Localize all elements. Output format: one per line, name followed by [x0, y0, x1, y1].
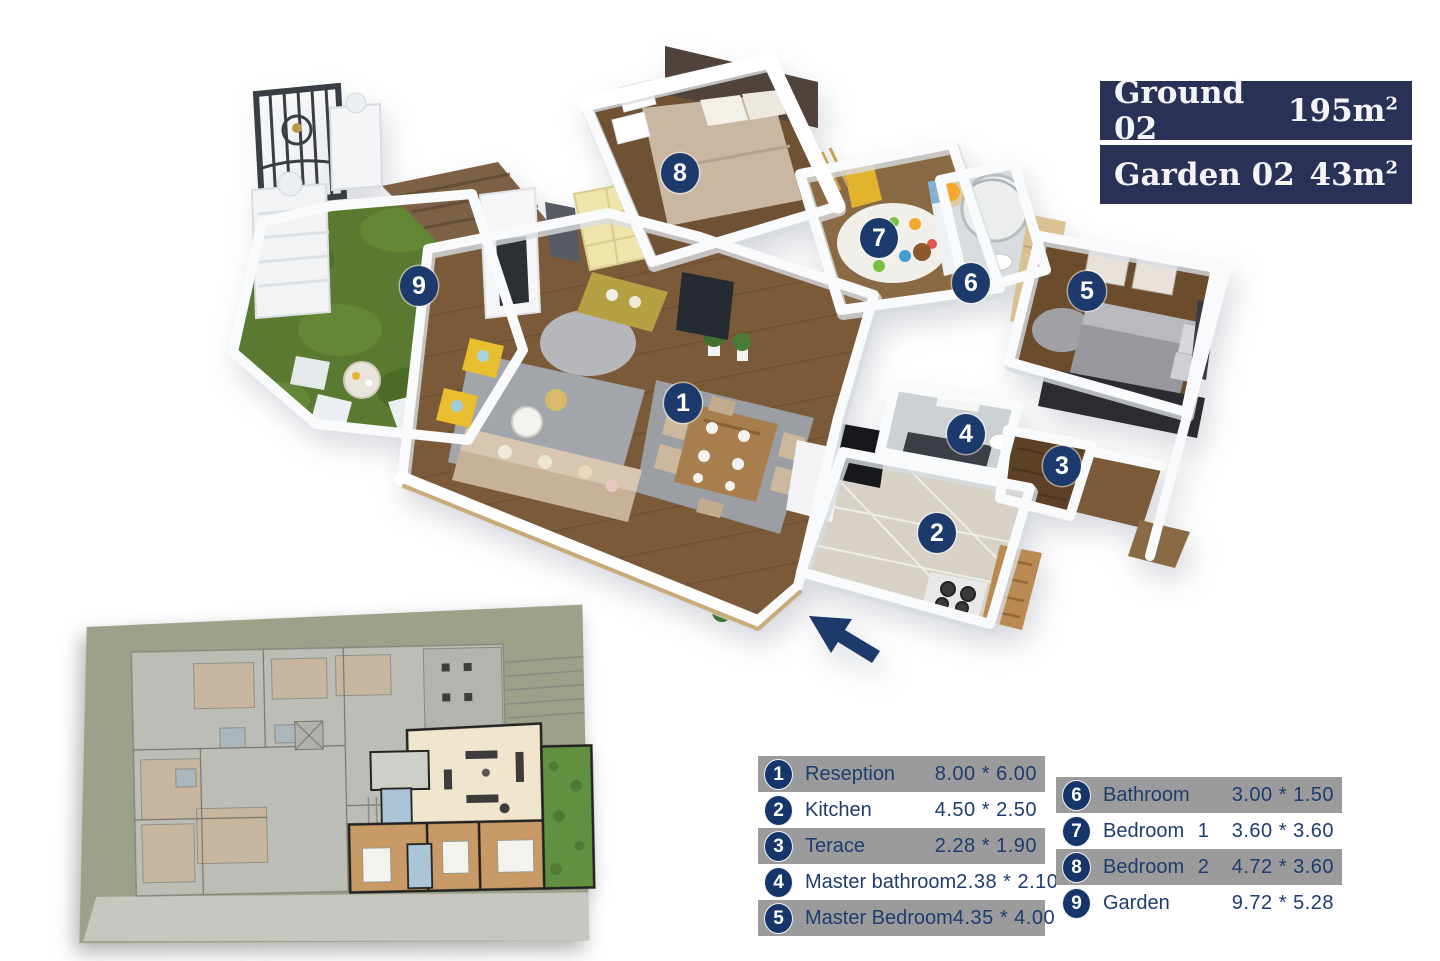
room-name: Reseption	[805, 763, 935, 786]
room-name: Bedroom	[1103, 820, 1198, 843]
teddy-bear	[913, 243, 931, 261]
room-number-badge: 1	[764, 759, 793, 790]
room-number-badge: 2	[764, 795, 793, 826]
legend-row: 7 Bedroom 1 3.60 * 3.60	[1056, 813, 1342, 849]
room-name: Garden	[1103, 892, 1198, 915]
room-number-badge: 7	[1062, 816, 1091, 847]
legend-row: 4 Master bathroom 2.38 * 2.10	[758, 864, 1045, 900]
room-dimensions: 4.50 * 2.50	[935, 799, 1037, 822]
room-name-suffix: 2	[1198, 856, 1232, 879]
room-dimensions: 8.00 * 6.00	[935, 763, 1037, 786]
legend-row: 6 Bathroom 3.00 * 1.50	[1056, 777, 1342, 813]
title-row-ground: Ground 02 195m2	[1100, 81, 1412, 140]
legend-row: 5 Master Bedroom 4.35 * 4.00	[758, 900, 1045, 936]
garden-area-value: 43m2	[1310, 157, 1398, 193]
room-dimensions: 9.72 * 5.28	[1232, 892, 1334, 915]
entrance-arrow	[809, 616, 880, 663]
legend-right: 6 Bathroom 3.00 * 1.50 7 Bedroom 1 3.60 …	[1056, 777, 1342, 921]
side-table	[545, 389, 567, 411]
room-dimensions: 2.28 * 1.90	[935, 835, 1037, 858]
room-number-badge: 8	[1062, 852, 1091, 883]
unit-name: Ground 02	[1114, 75, 1288, 147]
room-name: Bathroom	[1103, 784, 1198, 807]
room-dimensions: 4.72 * 3.60	[1232, 856, 1334, 879]
room-name: Bedroom	[1103, 856, 1198, 879]
room-name: Master Bedroom	[805, 907, 953, 930]
room-dimensions: 4.35 * 4.00	[953, 907, 1055, 930]
room-name-suffix: 1	[1198, 820, 1232, 843]
room-name: Master bathroom	[805, 871, 956, 894]
room-number-badge: 9	[1062, 888, 1091, 919]
legend-row: 3 Terace 2.28 * 1.90	[758, 828, 1045, 864]
room-number-badge: 5	[764, 903, 793, 934]
room-number-badge: 4	[764, 867, 793, 898]
garden-name: Garden 02	[1114, 157, 1295, 193]
siteplan-2d	[42, 600, 609, 961]
legend-row: 9 Garden 9.72 * 5.28	[1056, 885, 1342, 921]
room-dimensions: 3.00 * 1.50	[1232, 784, 1334, 807]
coffee-table	[512, 407, 542, 437]
wall-art	[676, 272, 734, 340]
room-name: Terace	[805, 835, 935, 858]
legend-row: 2 Kitchen 4.50 * 2.50	[758, 792, 1045, 828]
title-row-garden: Garden 02 43m2	[1100, 145, 1412, 204]
room-dimensions: 3.60 * 3.60	[1232, 820, 1334, 843]
unit-area: 195m2	[1288, 93, 1398, 129]
room-dimensions: 2.38 * 2.10	[956, 871, 1058, 894]
legend-left: 1 Reseption 8.00 * 6.00 2 Kitchen 4.50 *…	[758, 756, 1045, 936]
legend-row: 1 Reseption 8.00 * 6.00	[758, 756, 1045, 792]
room-number-badge: 6	[1062, 780, 1091, 811]
title-block: Ground 02 195m2 Garden 02 43m2	[1100, 81, 1412, 204]
floorplan-canvas: 123456789 Ground 02 195m2 Garden 02 43m2…	[0, 0, 1440, 961]
room-name: Kitchen	[805, 799, 935, 822]
room-number-badge: 3	[764, 831, 793, 862]
legend-row: 8 Bedroom 2 4.72 * 3.60	[1056, 849, 1342, 885]
